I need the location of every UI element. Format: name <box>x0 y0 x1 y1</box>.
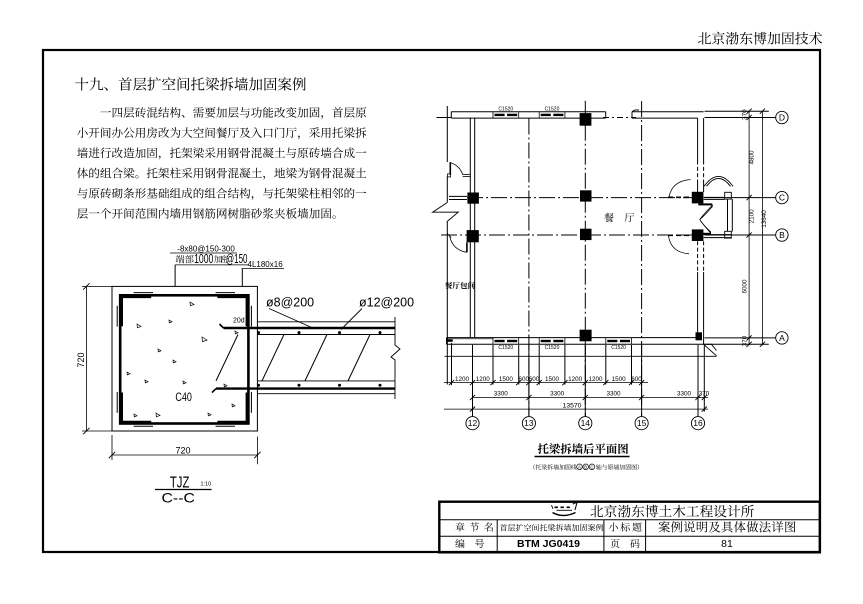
svg-text:600: 600 <box>631 376 642 383</box>
svg-text:ø8@200: ø8@200 <box>266 296 314 310</box>
svg-text:1000: 1000 <box>194 251 213 266</box>
svg-text:370: 370 <box>699 391 710 398</box>
svg-text:370: 370 <box>741 335 748 346</box>
svg-text:4L180x16: 4L180x16 <box>248 260 284 269</box>
svg-text:720: 720 <box>76 352 86 367</box>
svg-text:2100: 2100 <box>749 209 756 224</box>
svg-text:ø12@200: ø12@200 <box>359 296 414 310</box>
svg-text:C1520: C1520 <box>498 106 513 112</box>
svg-text:15: 15 <box>637 418 647 428</box>
svg-text:3300: 3300 <box>494 391 509 398</box>
svg-text:1200: 1200 <box>455 376 470 383</box>
svg-text:C1520: C1520 <box>498 345 513 351</box>
svg-text:16: 16 <box>693 418 703 428</box>
svg-text:12: 12 <box>468 418 478 428</box>
svg-text:BTM JG0419: BTM JG0419 <box>517 538 580 550</box>
svg-text:1200: 1200 <box>568 376 583 383</box>
svg-text:3300: 3300 <box>550 391 565 398</box>
svg-text:1500: 1500 <box>499 376 514 383</box>
svg-text:13: 13 <box>524 418 534 428</box>
svg-text:6000: 6000 <box>741 279 748 294</box>
svg-text:1:10: 1:10 <box>201 482 212 488</box>
svg-text:C: C <box>779 193 785 203</box>
svg-text:1200: 1200 <box>476 376 491 383</box>
svg-text:D: D <box>779 113 785 123</box>
svg-text:14: 14 <box>581 418 591 428</box>
svg-text:1500: 1500 <box>545 376 560 383</box>
svg-text:13570: 13570 <box>563 402 582 409</box>
svg-text:4800: 4800 <box>749 150 756 165</box>
svg-text:C1520: C1520 <box>545 106 560 112</box>
svg-text:C1520: C1520 <box>545 345 560 351</box>
svg-text:C--C: C--C <box>162 489 195 505</box>
svg-text:A: A <box>578 465 581 470</box>
svg-text:@150: @150 <box>226 251 248 266</box>
svg-text:720: 720 <box>175 445 190 455</box>
svg-text:3300: 3300 <box>677 391 692 398</box>
svg-text:1500: 1500 <box>612 376 627 383</box>
svg-text:C: C <box>590 465 593 470</box>
svg-text:B: B <box>779 230 785 240</box>
svg-text:1200: 1200 <box>588 376 603 383</box>
svg-text:20d: 20d <box>233 318 245 325</box>
svg-text:81: 81 <box>721 538 733 550</box>
svg-text:13640: 13640 <box>761 210 768 228</box>
svg-text:600: 600 <box>529 376 540 383</box>
svg-text:3300: 3300 <box>606 391 621 398</box>
svg-text:B: B <box>584 465 587 470</box>
svg-text:C1520: C1520 <box>611 345 626 351</box>
svg-text:C40: C40 <box>175 390 192 404</box>
svg-text:A: A <box>779 333 785 343</box>
svg-text:370: 370 <box>741 109 748 120</box>
